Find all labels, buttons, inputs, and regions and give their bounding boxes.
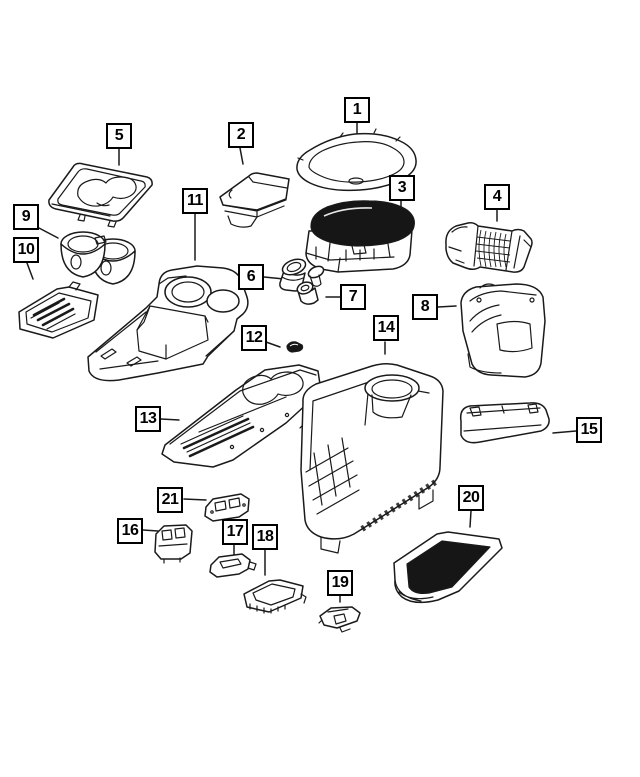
parts-diagram-canvas: 1 2 3 4 5 6 7 8 9 10 11 12 13 14 15 16 1…	[0, 0, 640, 777]
diagram-line-art	[0, 0, 640, 777]
part-20-mat-tray-drawing	[394, 532, 502, 602]
callout-19[interactable]: 19	[327, 570, 353, 596]
callout-15[interactable]: 15	[576, 417, 602, 443]
part-18-module-drawing	[244, 580, 306, 613]
callout-3[interactable]: 3	[389, 175, 415, 201]
callout-11[interactable]: 11	[182, 188, 208, 214]
callout-9[interactable]: 9	[13, 204, 39, 230]
callout-14[interactable]: 14	[373, 315, 399, 341]
part-4-vent-panel-drawing	[446, 223, 532, 272]
part-12-clip-drawing	[287, 342, 303, 352]
callout-6[interactable]: 6	[238, 264, 264, 290]
part-13-cupholder-panel-drawing	[162, 365, 321, 467]
part-15-trim-strip-drawing	[461, 403, 549, 443]
callout-4[interactable]: 4	[484, 184, 510, 210]
callout-17[interactable]: 17	[222, 519, 248, 545]
callout-5[interactable]: 5	[106, 123, 132, 149]
part-10-tray-mat-drawing	[19, 282, 98, 338]
part-14-console-body-drawing	[301, 364, 443, 553]
part-8-rear-trim-panel-drawing	[461, 284, 545, 377]
part-2-tray-drawing	[220, 173, 289, 227]
callout-13[interactable]: 13	[135, 406, 161, 432]
callout-16[interactable]: 16	[117, 518, 143, 544]
callout-7[interactable]: 7	[340, 284, 366, 310]
callout-18[interactable]: 18	[252, 524, 278, 550]
callout-8[interactable]: 8	[412, 294, 438, 320]
callout-21[interactable]: 21	[157, 487, 183, 513]
part-3-armrest-lid-drawing	[306, 201, 414, 272]
part-5-bezel-plate-drawing	[49, 163, 152, 227]
callout-2[interactable]: 2	[228, 122, 254, 148]
callout-12[interactable]: 12	[241, 325, 267, 351]
part-21-switch-drawing	[205, 494, 249, 521]
callout-20[interactable]: 20	[458, 485, 484, 511]
callout-10[interactable]: 10	[13, 237, 39, 263]
part-16-switch-bank-drawing	[155, 525, 192, 563]
part-9-cupholder-insert-drawing	[61, 232, 135, 284]
part-19-bracket-drawing	[319, 607, 360, 632]
callout-1[interactable]: 1	[344, 97, 370, 123]
part-17-outlet-unit-drawing	[210, 554, 256, 577]
